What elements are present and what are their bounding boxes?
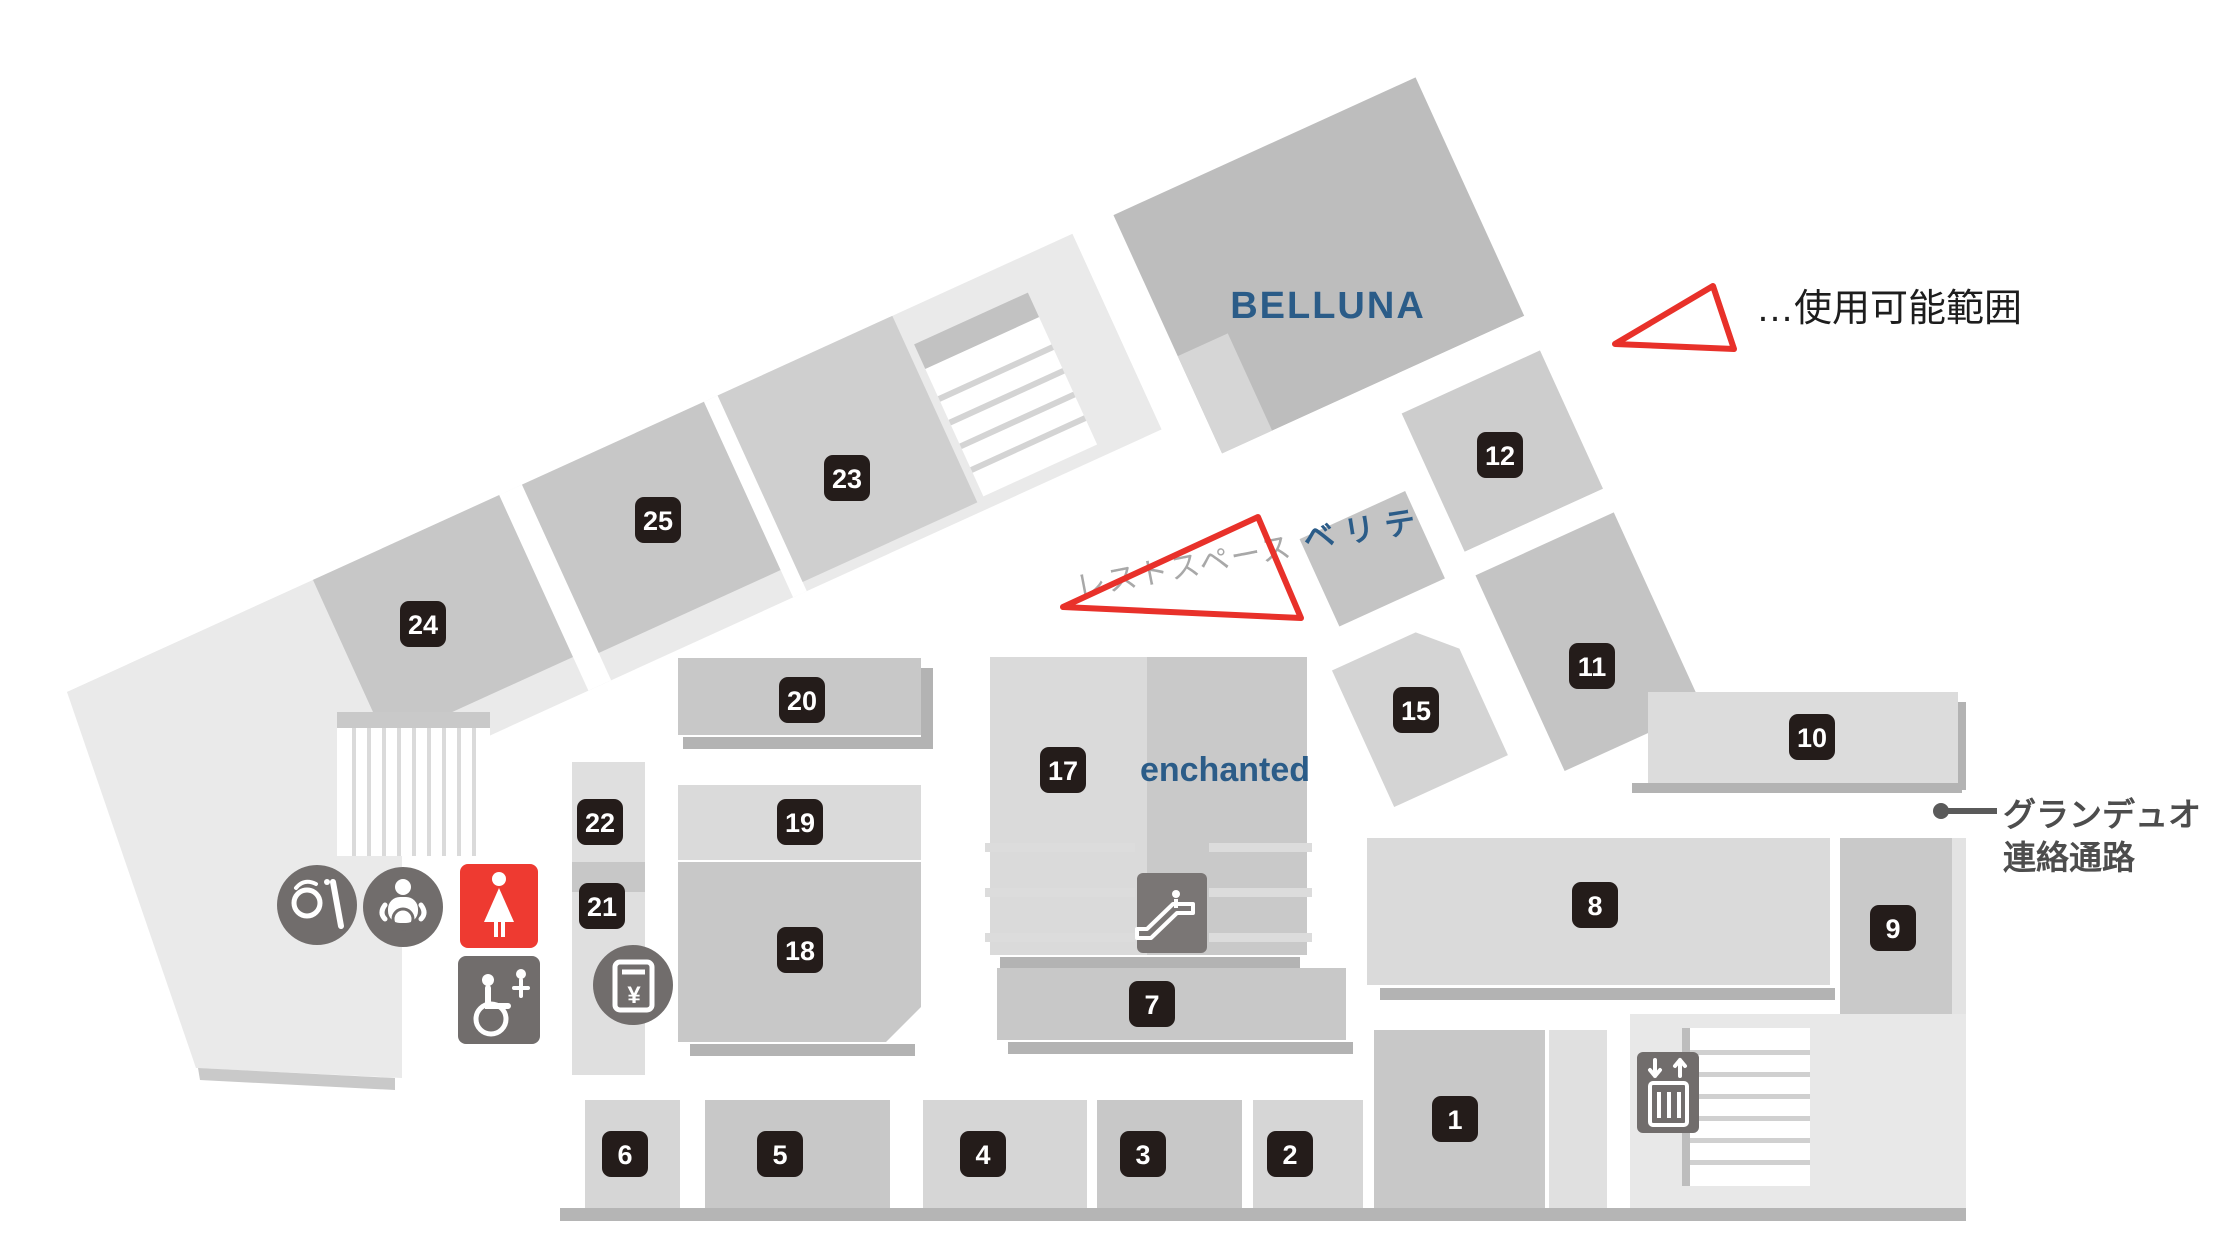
svg-text:11: 11 — [1578, 652, 1607, 682]
atm-symbol: ¥ — [627, 982, 641, 1009]
svg-text:2: 2 — [1282, 1140, 1297, 1170]
svg-text:12: 12 — [1485, 441, 1515, 471]
store-badge-17: 17 — [1040, 747, 1086, 793]
store-badge-10: 10 — [1789, 714, 1835, 760]
store-badge-11: 11 — [1569, 643, 1615, 689]
legend-note: …使用可能範囲 — [1756, 288, 2022, 330]
accessible-restroom-icon — [458, 956, 540, 1044]
svg-text:17: 17 — [1048, 756, 1078, 786]
stairs-left-steps — [352, 728, 476, 856]
svg-text:21: 21 — [587, 892, 617, 922]
granduo-pointer-dot — [1933, 803, 1949, 819]
store-badge-15: 15 — [1393, 687, 1439, 733]
store-badge-2: 2 — [1267, 1131, 1313, 1177]
svg-text:9: 9 — [1885, 914, 1900, 944]
store-badge-3: 3 — [1120, 1131, 1166, 1177]
store-badge-6: 6 — [602, 1131, 648, 1177]
svg-text:10: 10 — [1797, 723, 1827, 753]
store-badge-21: 21 — [579, 883, 625, 929]
store-badge-22: 22 — [577, 799, 623, 845]
store-badge-7: 7 — [1129, 981, 1175, 1027]
stairs-left-landing — [337, 712, 490, 728]
powder-room-icon — [277, 865, 357, 945]
store-badge-24: 24 — [400, 601, 446, 647]
womens-restroom-icon — [460, 864, 538, 948]
store-badge-20: 20 — [779, 677, 825, 723]
svg-text:7: 7 — [1144, 990, 1159, 1020]
shadow — [1632, 783, 1962, 793]
svg-text:3: 3 — [1135, 1140, 1150, 1170]
shadow — [690, 1044, 915, 1056]
shadow — [1380, 988, 1835, 1000]
store-badge-4: 4 — [960, 1131, 1006, 1177]
svg-text:6: 6 — [617, 1140, 632, 1170]
svg-text:5: 5 — [772, 1140, 787, 1170]
store-badge-1: 1 — [1432, 1096, 1478, 1142]
shadow — [1958, 702, 1966, 790]
granduo-label-line2: 連絡通路 — [2003, 839, 2136, 876]
svg-text:18: 18 — [785, 936, 815, 966]
store-badge-25: 25 — [635, 497, 681, 543]
svg-text:25: 25 — [643, 506, 673, 536]
usable-range-triangle-legend — [1615, 286, 1734, 349]
escalator-icon — [1137, 873, 1207, 953]
svg-text:20: 20 — [787, 686, 817, 716]
floor-map: BELLUNA enchanted ベリテ レストスペース …使用可能範囲 グラ… — [0, 0, 2233, 1234]
store-block-17 — [990, 657, 1147, 955]
shadow — [1000, 957, 1300, 969]
shadow — [1008, 1042, 1353, 1054]
svg-text:19: 19 — [785, 808, 815, 838]
store-badge-18: 18 — [777, 927, 823, 973]
store-block-3 — [1097, 1100, 1242, 1208]
store-badge-5: 5 — [757, 1131, 803, 1177]
svg-text:8: 8 — [1587, 891, 1602, 921]
belluna-label: BELLUNA — [1230, 285, 1426, 327]
store-badge-8: 8 — [1572, 882, 1618, 928]
svg-text:24: 24 — [408, 610, 438, 640]
store-1-side-strip — [1549, 1030, 1607, 1208]
store-badge-19: 19 — [777, 799, 823, 845]
granduo-label-line1: グランデュオ — [2003, 796, 2201, 833]
svg-text:23: 23 — [832, 464, 862, 494]
baby-room-icon — [363, 867, 443, 947]
store-badge-9: 9 — [1870, 905, 1916, 951]
shadow — [683, 737, 933, 749]
elevator-icon — [1637, 1052, 1699, 1133]
svg-text:22: 22 — [585, 808, 615, 838]
svg-text:15: 15 — [1401, 696, 1431, 726]
store-badge-23: 23 — [824, 455, 870, 501]
floor-map-canvas: BELLUNA enchanted ベリテ レストスペース …使用可能範囲 グラ… — [0, 0, 2233, 1234]
rest-space-label-group: レストスペース — [1073, 530, 1296, 604]
bottom-shadow-band — [560, 1208, 1966, 1221]
atm-icon: ¥ — [593, 945, 673, 1025]
granduo-pointer-line — [1947, 808, 1997, 814]
rest-space-label: レストスペース — [1073, 530, 1296, 604]
store-badge-12: 12 — [1477, 432, 1523, 478]
svg-text:1: 1 — [1447, 1105, 1462, 1135]
enchanted-label: enchanted — [1140, 751, 1310, 789]
svg-text:4: 4 — [975, 1140, 990, 1170]
shadow — [921, 668, 933, 747]
